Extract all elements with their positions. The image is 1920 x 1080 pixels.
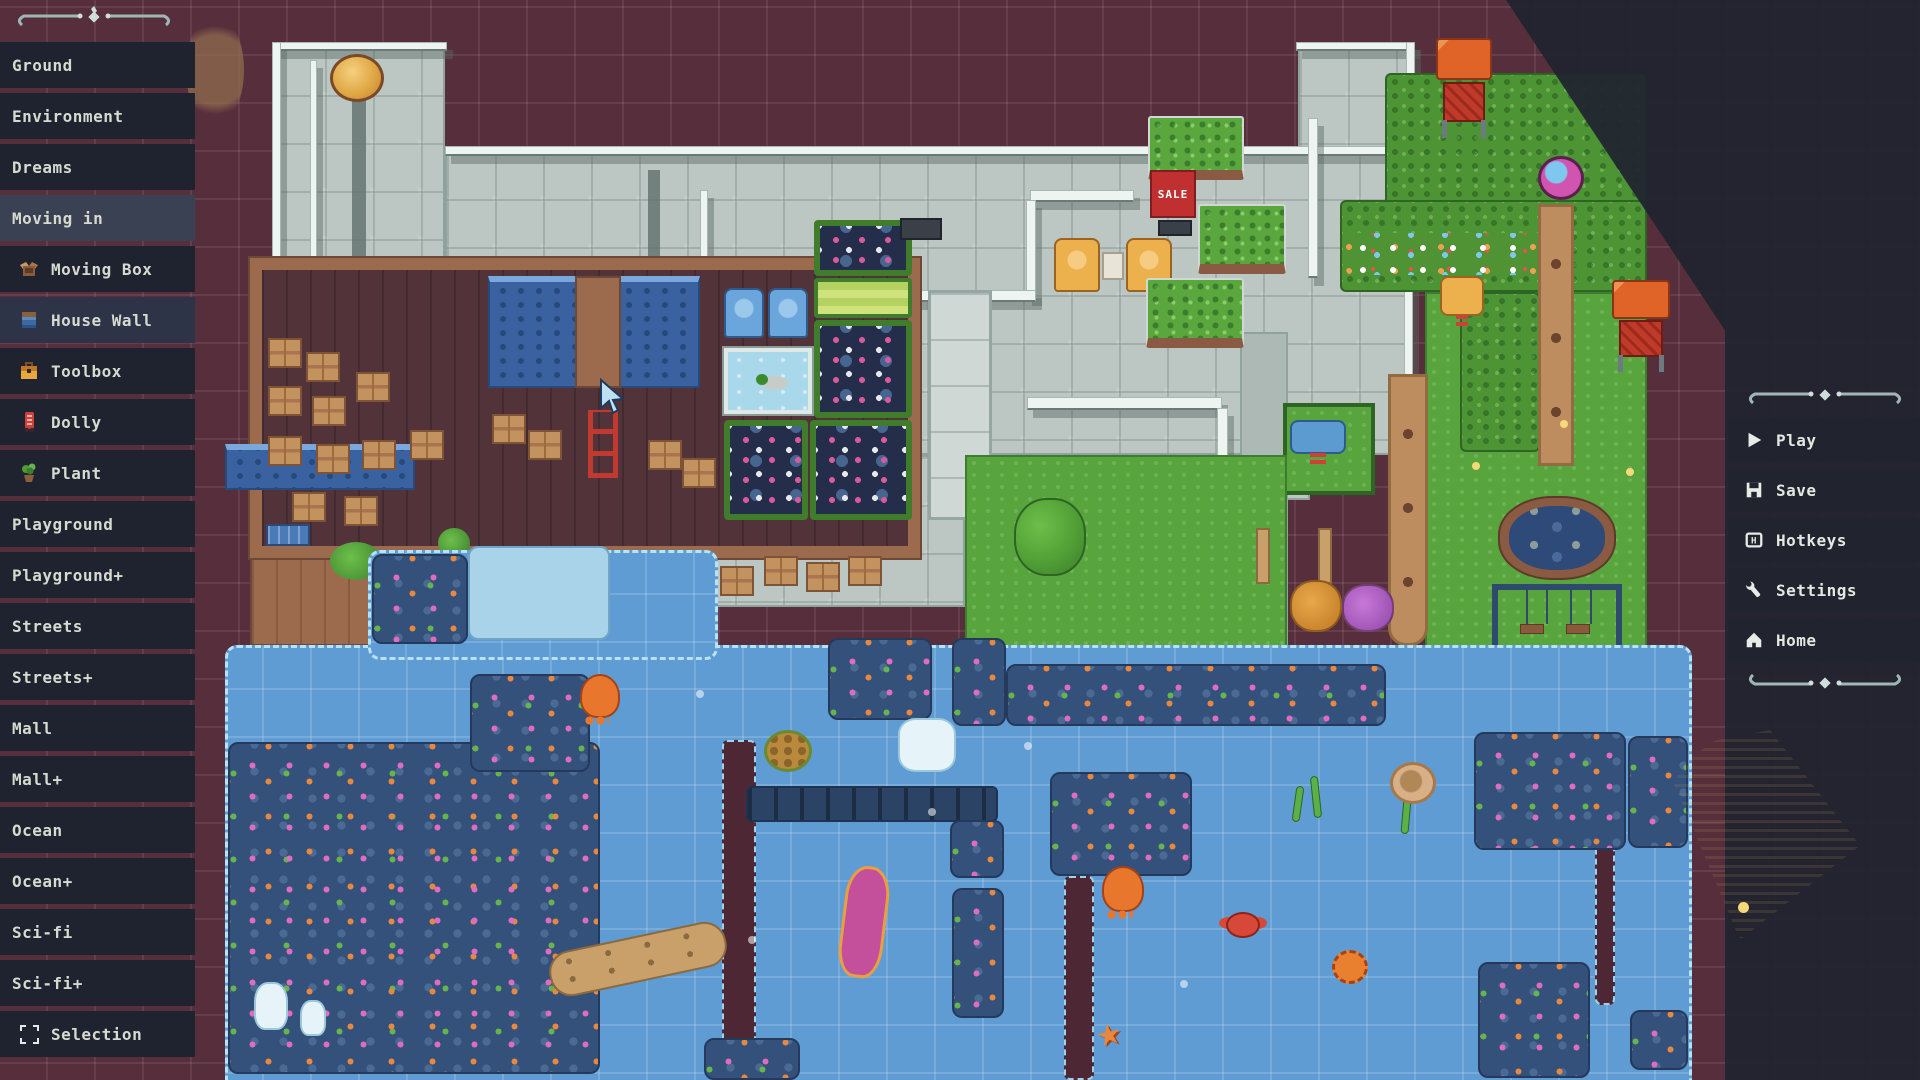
railing[interactable] <box>445 146 1413 156</box>
coral-island[interactable] <box>468 546 610 640</box>
play-button[interactable]: Play <box>1728 418 1920 462</box>
sale-sign-base <box>1158 220 1192 236</box>
blue-armchair[interactable] <box>768 288 808 338</box>
sidebar-item-ocean[interactable]: Ocean <box>0 807 195 853</box>
moving-box[interactable] <box>682 458 716 488</box>
coral-reef[interactable] <box>952 638 1006 726</box>
truck-spring-rider[interactable] <box>1290 420 1346 454</box>
blue-armchair[interactable] <box>724 288 764 338</box>
dolly-icon <box>16 410 42 434</box>
purple-bush[interactable] <box>1342 584 1394 632</box>
save-button[interactable]: Save <box>1728 468 1920 512</box>
home-icon <box>1742 629 1766 651</box>
coral-reef[interactable] <box>1478 962 1590 1078</box>
rider-spring <box>1456 312 1468 326</box>
moving-box[interactable] <box>410 430 444 460</box>
railing[interactable] <box>1026 200 1036 298</box>
swing-chain <box>1570 590 1572 624</box>
crab[interactable] <box>1226 912 1260 938</box>
sidebar-item-mall[interactable]: Mall <box>0 705 195 751</box>
sidebar-item-ground[interactable]: Ground <box>0 42 195 88</box>
stand-leg <box>1442 120 1447 138</box>
coral-reef-row[interactable] <box>1006 664 1386 726</box>
sidebar-item-label: Sci-fi <box>12 923 73 942</box>
play-icon <box>1742 429 1766 451</box>
sea-turtle[interactable] <box>764 730 812 772</box>
hotkeys-icon: H <box>1742 529 1766 551</box>
bubble <box>1180 980 1188 988</box>
mouse-cursor <box>598 378 628 418</box>
coral-reef[interactable] <box>950 820 1004 878</box>
sidebar-item-ocean-plus[interactable]: Ocean+ <box>0 858 195 904</box>
moving-box[interactable] <box>344 496 378 526</box>
sidebar-item-label: Playground <box>12 515 113 534</box>
fence-post[interactable] <box>1318 528 1332 584</box>
moving-box[interactable] <box>356 372 390 402</box>
button-label: Home <box>1776 631 1817 650</box>
sunken-pier[interactable] <box>746 786 998 822</box>
iceberg[interactable] <box>300 1000 326 1036</box>
duck-spring-rider[interactable] <box>1440 276 1484 316</box>
coin-plaque[interactable] <box>330 54 384 102</box>
swing-chain <box>1590 590 1592 624</box>
swing-seat <box>1520 624 1544 634</box>
sidebar-item-label: Ground <box>12 56 73 75</box>
sidebar-item-mall-plus[interactable]: Mall+ <box>0 756 195 802</box>
stand-leg <box>1659 355 1664 372</box>
checkout-counter[interactable] <box>814 278 912 318</box>
swing-seat <box>1566 624 1590 634</box>
coral-reef[interactable] <box>704 1038 800 1080</box>
sidebar-item-moving-box[interactable]: Moving Box <box>0 246 195 292</box>
plant-icon <box>16 461 42 485</box>
bubble <box>1024 742 1032 750</box>
button-label: Settings <box>1776 581 1857 600</box>
coral-reef[interactable] <box>828 638 932 720</box>
moving-box[interactable] <box>312 396 346 426</box>
stand-roof <box>1612 280 1670 319</box>
bush-planter[interactable] <box>1146 278 1244 348</box>
shrine-stand[interactable] <box>1612 280 1670 372</box>
tree[interactable] <box>1014 498 1086 576</box>
moving-box[interactable] <box>528 430 562 460</box>
wood-pillar <box>575 276 621 388</box>
sidebar-item-sci-fi[interactable]: Sci-fi <box>0 909 195 955</box>
ornament-divider <box>1742 668 1908 692</box>
stand-roof <box>1436 38 1492 80</box>
sidebar-item-label: Dolly <box>51 413 102 432</box>
railing[interactable] <box>1308 118 1318 278</box>
bubble <box>748 936 756 944</box>
moving-box[interactable] <box>492 414 526 444</box>
ice-rubble[interactable] <box>898 718 956 772</box>
sparkle <box>1472 462 1480 470</box>
octopus[interactable] <box>580 674 620 718</box>
railing[interactable] <box>1296 42 1414 51</box>
stand-leg <box>1481 120 1486 138</box>
sidebar-item-label: Ocean+ <box>12 872 73 891</box>
moving-box[interactable] <box>268 338 302 368</box>
button-label: Hotkeys <box>1776 531 1847 550</box>
sidebar-item-label: Dreams <box>12 158 73 177</box>
vending-shelf[interactable] <box>724 420 808 520</box>
dark-appliance[interactable] <box>900 218 942 240</box>
sidebar-item-label: Mall <box>12 719 53 738</box>
iceberg[interactable] <box>254 982 288 1030</box>
sidebar-item-selection[interactable]: Selection <box>0 1011 195 1057</box>
sidebar-item-label: Toolbox <box>51 362 122 381</box>
sidebar-item-label: Selection <box>51 1025 142 1044</box>
pond-water <box>1509 506 1605 570</box>
stand-body <box>1619 320 1663 357</box>
coral-reef[interactable] <box>1630 1010 1688 1070</box>
selection-icon <box>16 1022 42 1046</box>
shrine-stand[interactable] <box>1436 38 1492 138</box>
rider-spring <box>1310 450 1326 464</box>
bubble <box>928 808 936 816</box>
coral-reef[interactable] <box>1050 772 1192 876</box>
display-shelf[interactable] <box>814 220 912 276</box>
coral-reef[interactable] <box>372 554 468 644</box>
sidebar-item-label: Environment <box>12 107 123 126</box>
house-wall-icon <box>16 308 42 332</box>
railing[interactable] <box>310 60 317 285</box>
sidebar-item-playground[interactable]: Playground <box>0 501 195 547</box>
sidebar-item-environment[interactable]: Environment <box>0 93 195 139</box>
orange-bush[interactable] <box>1290 580 1342 632</box>
sidebar-item-label: Streets+ <box>12 668 93 687</box>
railing[interactable] <box>1027 397 1222 410</box>
hedge-block[interactable] <box>1460 292 1540 452</box>
moving-box[interactable] <box>316 444 350 474</box>
sparkle <box>1560 420 1568 428</box>
sea-shell[interactable] <box>1390 762 1436 804</box>
sidebar-item-label: Mall+ <box>12 770 63 789</box>
swing-chain <box>1546 590 1548 624</box>
vending-shelf[interactable] <box>810 420 912 520</box>
sidebar-item-dreams[interactable]: Dreams <box>0 144 195 190</box>
sidebar-item-playground-plus[interactable]: Playground+ <box>0 552 195 598</box>
sidebar-item-plant[interactable]: Plant <box>0 450 195 496</box>
sidebar-item-streets[interactable]: Streets <box>0 603 195 649</box>
actions-sidebar: Play Save H Hotkeys Settings Home <box>1726 0 1920 1080</box>
moving-box[interactable] <box>268 436 302 466</box>
moving-box[interactable] <box>362 440 396 470</box>
bench[interactable] <box>266 524 310 546</box>
sidebar-item-label: Streets <box>12 617 83 636</box>
ocean-trench[interactable] <box>1064 876 1094 1080</box>
moving-box[interactable] <box>648 440 682 470</box>
button-label: Save <box>1776 481 1817 500</box>
palette-sidebar: Ground Environment Dreams Moving in Movi… <box>0 0 195 1080</box>
ornament-divider <box>14 6 174 34</box>
button-label: Play <box>1776 431 1817 450</box>
railing[interactable] <box>1030 190 1134 202</box>
sidebar-item-toolbox[interactable]: Toolbox <box>0 348 195 394</box>
sparkle <box>1626 468 1634 476</box>
sidebar-item-sci-fi-plus[interactable]: Sci-fi+ <box>0 960 195 1006</box>
moving-box[interactable] <box>306 352 340 382</box>
sidebar-item-house-wall[interactable]: House Wall <box>0 297 195 343</box>
coral-reef[interactable] <box>1474 732 1626 850</box>
settings-icon <box>1742 579 1766 601</box>
stand-body <box>1443 82 1486 122</box>
level-editor-screen: SALE <box>0 0 1920 1080</box>
sale-sign-text: SALE <box>1158 188 1189 201</box>
moving-box[interactable] <box>806 562 840 592</box>
swing-frame <box>1492 584 1622 590</box>
railing[interactable] <box>275 42 447 51</box>
ornament-divider <box>1742 386 1908 410</box>
dirt-path[interactable] <box>1538 204 1574 466</box>
sidebar-item-streets-plus[interactable]: Streets+ <box>0 654 195 700</box>
sidebar-item-label: Ocean <box>12 821 63 840</box>
dirt-path[interactable] <box>1388 374 1428 646</box>
sidebar-item-dolly[interactable]: Dolly <box>0 399 195 445</box>
moving-box[interactable] <box>720 566 754 596</box>
yellow-armchair[interactable] <box>1054 238 1100 292</box>
home-button[interactable]: Home <box>1728 618 1920 662</box>
flower-bed[interactable] <box>1346 233 1564 275</box>
sidebar-item-moving-in[interactable]: Moving in <box>0 195 195 241</box>
hotkeys-button[interactable]: H Hotkeys <box>1728 518 1920 562</box>
beach-ball[interactable] <box>1538 156 1584 200</box>
fence-post[interactable] <box>1256 528 1270 584</box>
coral-reef[interactable] <box>952 888 1004 1018</box>
moving-box-icon <box>16 257 42 281</box>
map-canvas[interactable]: SALE <box>0 0 1920 1080</box>
side-table[interactable] <box>1102 252 1124 280</box>
moving-box[interactable] <box>764 556 798 586</box>
save-icon <box>1742 479 1766 501</box>
bush-planter[interactable] <box>1198 204 1286 274</box>
pond[interactable] <box>1498 496 1616 580</box>
moving-box[interactable] <box>848 556 882 586</box>
vending-shelf[interactable] <box>814 320 912 418</box>
stand-leg <box>1618 355 1623 372</box>
octopus[interactable] <box>1102 866 1144 912</box>
duck-head <box>756 374 768 385</box>
sidebar-item-label: Sci-fi+ <box>12 974 83 993</box>
sale-sign[interactable]: SALE <box>1150 170 1196 218</box>
moving-box[interactable] <box>268 386 302 416</box>
toolbox-icon <box>16 359 42 383</box>
settings-button[interactable]: Settings <box>1728 568 1920 612</box>
svg-text:H: H <box>1751 537 1757 547</box>
aquarium[interactable] <box>724 348 812 414</box>
dolly-prop[interactable] <box>588 410 618 478</box>
sidebar-item-label: Plant <box>51 464 102 483</box>
moving-box[interactable] <box>292 492 326 522</box>
sidebar-item-label: Moving Box <box>51 260 152 279</box>
sidebar-item-label: House Wall <box>51 311 152 330</box>
swing-chain <box>1526 590 1528 624</box>
pufferfish[interactable] <box>1332 950 1368 984</box>
bubble <box>696 690 704 698</box>
sidebar-item-label: Moving in <box>12 209 103 228</box>
coral-reef[interactable] <box>470 674 590 772</box>
sidebar-item-label: Playground+ <box>12 566 123 585</box>
